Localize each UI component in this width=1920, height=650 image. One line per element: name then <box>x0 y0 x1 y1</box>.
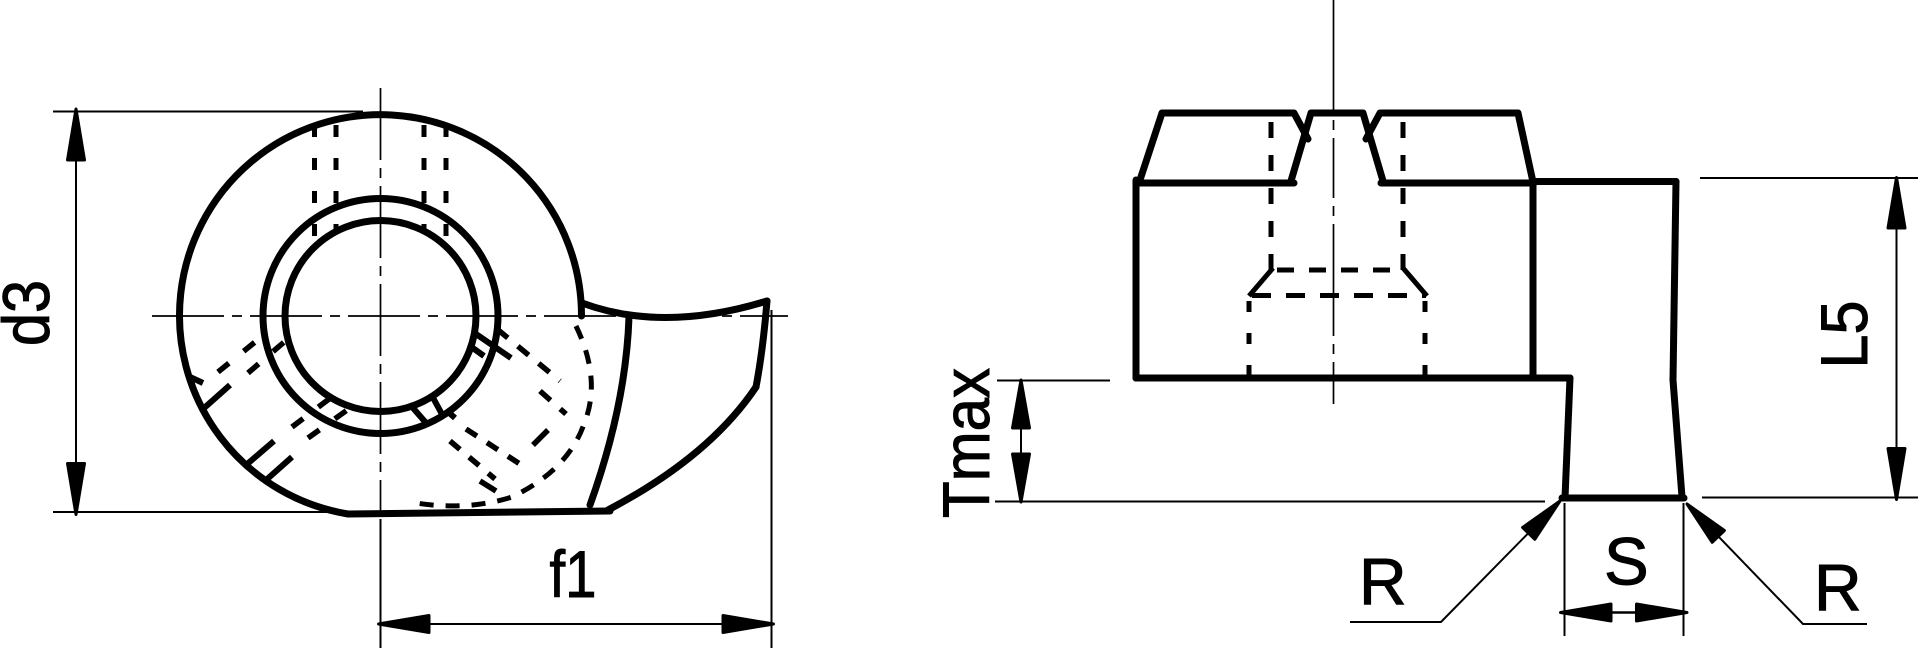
svg-text:R: R <box>1359 545 1407 619</box>
svg-text:f1: f1 <box>550 537 597 611</box>
svg-text:S: S <box>1604 525 1649 600</box>
svg-text:Tmax: Tmax <box>929 368 1003 518</box>
svg-text:d3: d3 <box>0 280 63 346</box>
svg-text:L5: L5 <box>1807 301 1881 369</box>
svg-text:R: R <box>1814 551 1862 625</box>
